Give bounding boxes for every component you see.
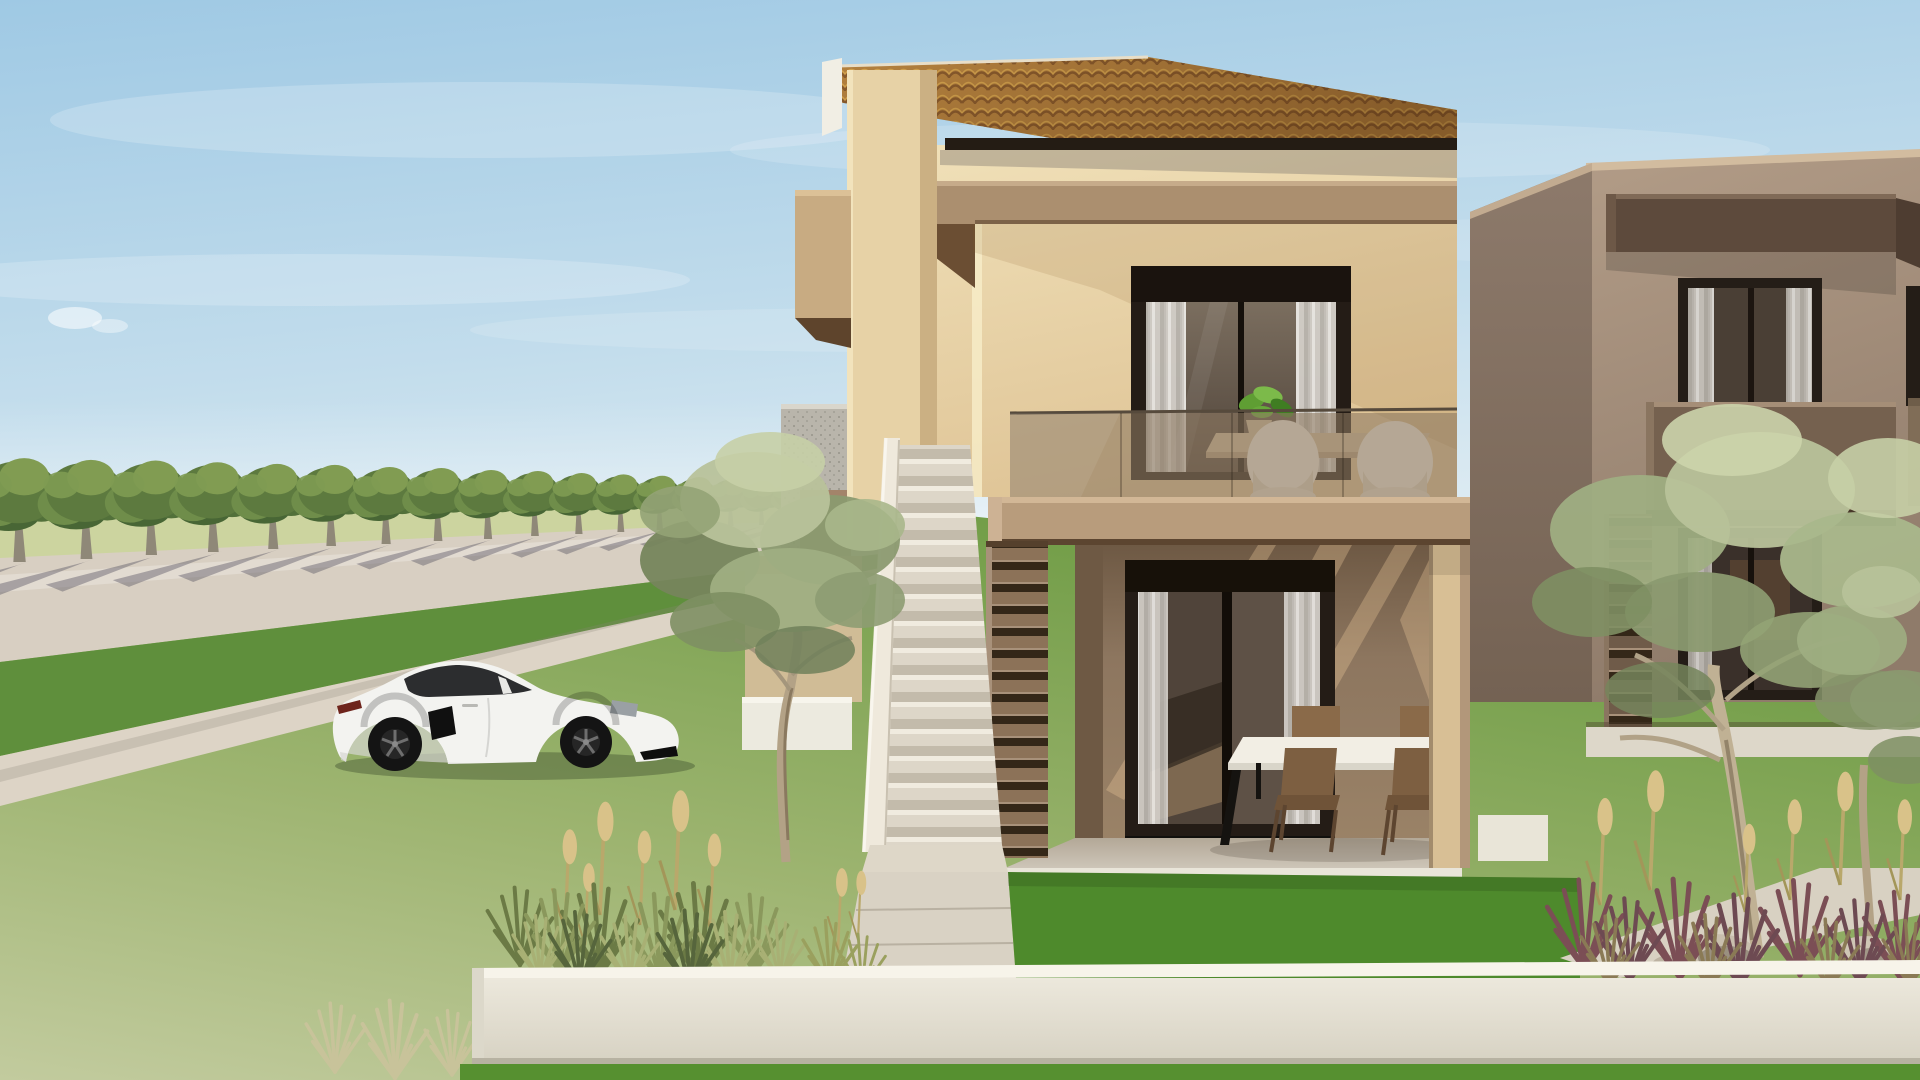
front-grass-strip <box>460 1064 1920 1080</box>
gutter <box>945 138 1457 150</box>
wall-front-face <box>472 978 1920 1062</box>
neighbor-window-sliver <box>1906 286 1920 406</box>
right-pillar <box>1429 545 1470 868</box>
portico-band <box>988 497 1470 545</box>
neighbor-plinth <box>1586 727 1920 757</box>
terrace-curtain-left <box>1138 592 1168 824</box>
car-rear-wheel <box>368 717 422 771</box>
neighbor-upper-window <box>1678 278 1822 412</box>
garden-curb <box>1478 815 1548 861</box>
car-door-handle <box>462 704 478 707</box>
side-eyebrow-box <box>795 190 851 348</box>
path-to-stairs <box>842 872 1016 980</box>
balcony-glass-railing <box>1010 409 1457 499</box>
door-header <box>1131 266 1351 302</box>
stair-base <box>862 845 1008 872</box>
planter-wall <box>742 697 852 750</box>
render-canvas <box>0 0 1920 1080</box>
roof-trim <box>822 58 842 136</box>
car-front-wheel <box>560 716 612 768</box>
car-side-intake <box>428 706 456 740</box>
wall-end-cap <box>472 968 484 1062</box>
architectural-render <box>0 0 1920 1080</box>
